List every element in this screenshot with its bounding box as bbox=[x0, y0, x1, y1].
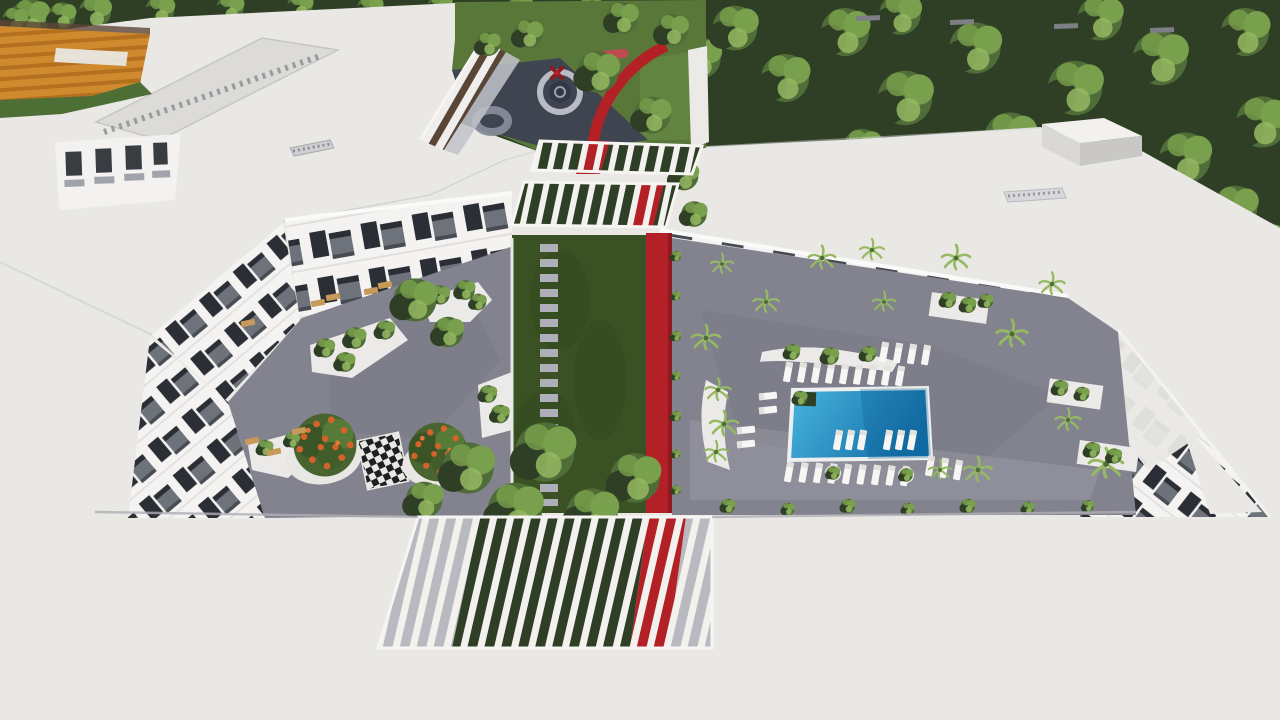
roof-edge-vent bbox=[856, 15, 880, 21]
roof-edge-vent bbox=[1054, 23, 1078, 29]
roof-edge-vent bbox=[950, 19, 974, 25]
garden-wall bbox=[688, 46, 709, 148]
pergola-top-upper bbox=[532, 141, 702, 174]
pergola-bottom bbox=[378, 517, 712, 648]
playground-ring-center bbox=[549, 81, 571, 103]
render-canvas bbox=[0, 0, 1280, 720]
outer-facade-fragment bbox=[55, 134, 183, 210]
aerial-render-image bbox=[0, 0, 1280, 720]
roof-edge-vent bbox=[1150, 27, 1174, 33]
orange-flower-tree bbox=[294, 414, 357, 477]
pergola-top-lower bbox=[512, 182, 678, 227]
